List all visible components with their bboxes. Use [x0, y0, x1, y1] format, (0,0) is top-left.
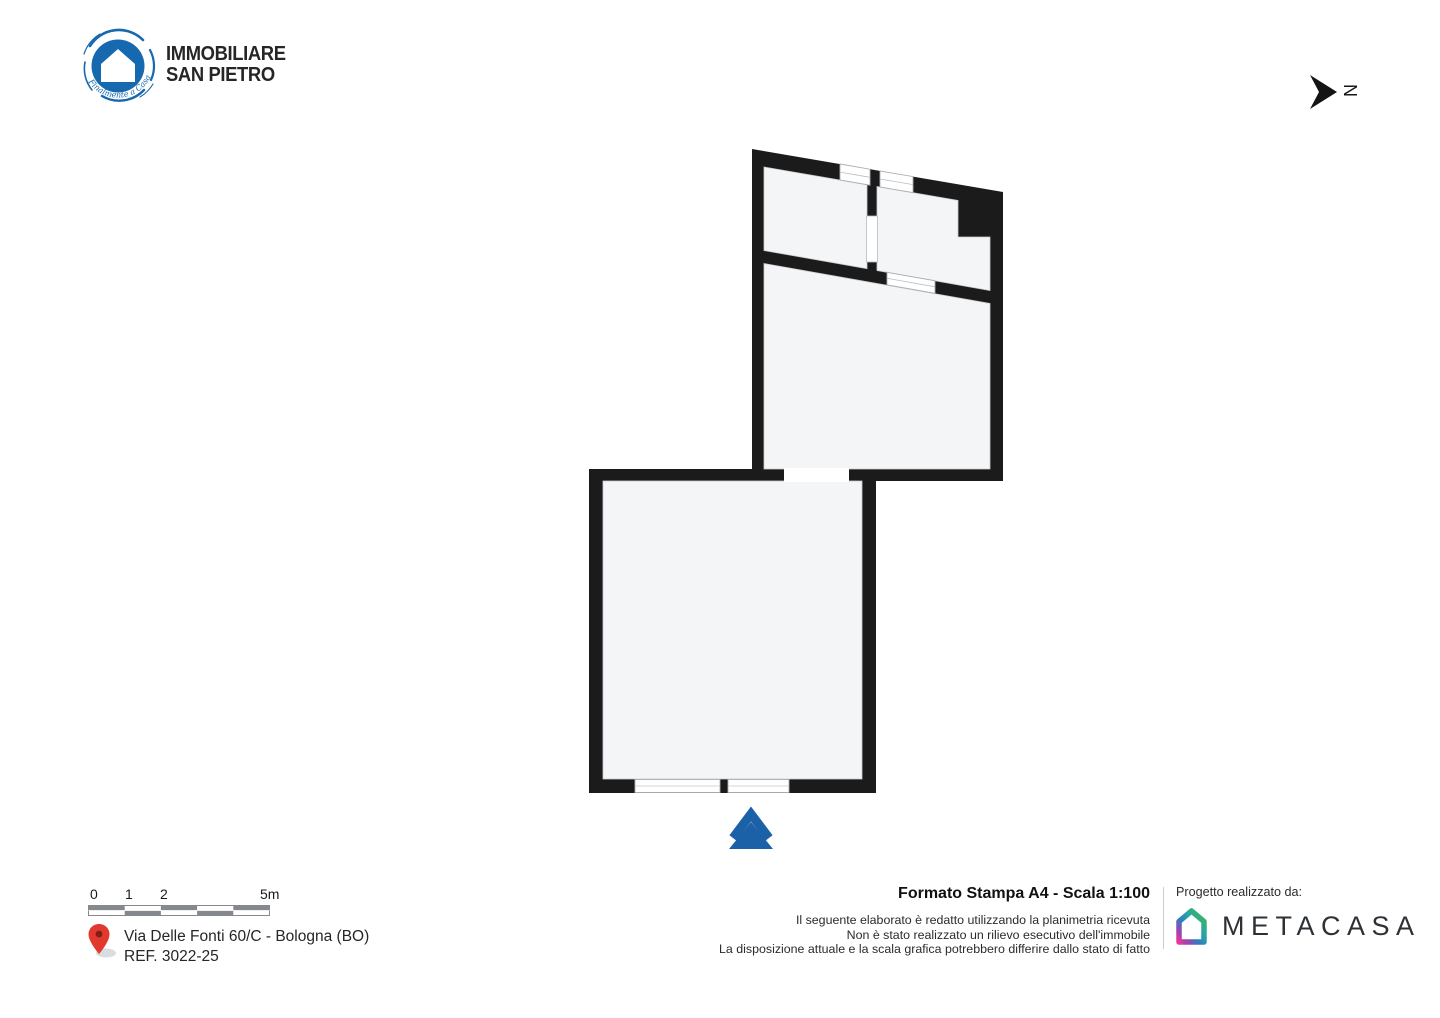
- door-top-rooms: [867, 216, 878, 262]
- scale-bar: 0 1 2 5m: [88, 886, 298, 922]
- room-lower: [603, 481, 862, 779]
- scale-label-2: 2: [160, 886, 168, 902]
- metacasa-house-icon: [1176, 908, 1207, 945]
- agency-name: IMMOBILIARE SAN PIETRO: [166, 44, 286, 86]
- scale-label-0: 0: [90, 886, 98, 902]
- disclaimer-text: Il seguente elaborato è redatto utilizza…: [430, 913, 1150, 957]
- agency-name-line2: SAN PIETRO: [166, 65, 286, 86]
- disclaimer-line1: Il seguente elaborato è redatto utilizza…: [430, 913, 1150, 928]
- address-ref: REF. 3022-25: [124, 947, 369, 967]
- door-between-units: [784, 468, 849, 482]
- scale-label-5m: 5m: [260, 886, 279, 902]
- scale-bar-labels: 0 1 2 5m: [88, 886, 298, 902]
- metacasa-brand-text: METACASA: [1222, 911, 1421, 942]
- floorplan-page: Finalmente a Casa IMMOBILIARE SAN PIETRO…: [0, 0, 1440, 1018]
- north-label: N: [1340, 84, 1360, 97]
- location-pin-icon: [88, 924, 118, 960]
- address-line1: Via Delle Fonti 60/C - Bologna (BO): [124, 927, 369, 947]
- metacasa-logo: METACASA: [1176, 908, 1421, 945]
- credit-block: Progetto realizzato da: METACASA: [1176, 885, 1421, 945]
- property-address: Via Delle Fonti 60/C - Bologna (BO) REF.…: [88, 924, 369, 966]
- floor-plan: [555, 125, 1035, 865]
- credit-label: Progetto realizzato da:: [1176, 885, 1421, 899]
- agency-logo: Finalmente a Casa IMMOBILIARE SAN PIETRO: [80, 24, 296, 114]
- agency-logo-icon: Finalmente a Casa: [80, 24, 158, 114]
- disclaimer-line2: Non è stato realizzato un rilievo esecut…: [430, 928, 1150, 943]
- footer-divider: [1163, 887, 1164, 949]
- scale-bar-graphic: [88, 905, 271, 917]
- scale-label-1: 1: [125, 886, 133, 902]
- print-info: Formato Stampa A4 - Scala 1:100 Il segue…: [430, 885, 1150, 957]
- entrance-arrow-icon: [729, 814, 773, 849]
- print-format-title: Formato Stampa A4 - Scala 1:100: [430, 885, 1150, 903]
- north-arrow-icon: N: [1300, 66, 1366, 122]
- disclaimer-line3: La disposizione attuale e la scala grafi…: [430, 942, 1150, 957]
- agency-name-line1: IMMOBILIARE: [166, 44, 286, 65]
